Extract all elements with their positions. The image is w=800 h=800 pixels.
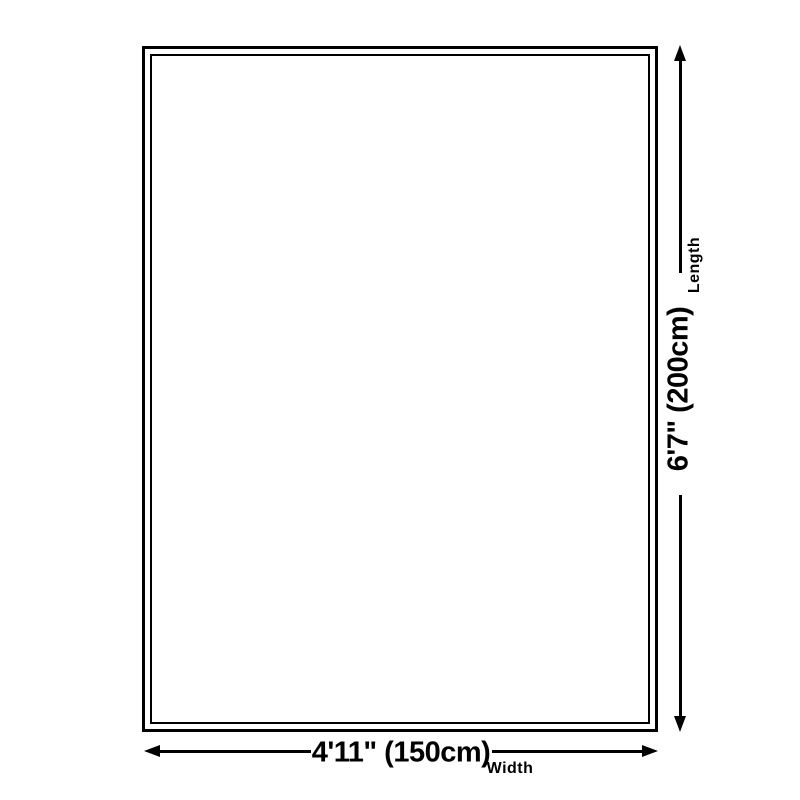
arrow-left-icon — [144, 745, 160, 757]
arrow-up-icon — [674, 45, 686, 61]
arrow-right-icon — [642, 745, 658, 757]
width-dimension-line-right — [492, 750, 643, 753]
product-outline-outer — [142, 46, 658, 732]
size-diagram: Length 6'7" (200cm) 4'11" (150cm) Width — [0, 0, 800, 800]
length-axis-label: Length — [686, 237, 704, 293]
length-dimension-line-top — [679, 60, 682, 273]
arrow-down-icon — [674, 716, 686, 732]
product-outline-inner — [150, 54, 650, 724]
length-dimension-line-bottom — [679, 495, 682, 717]
width-axis-label: Width — [487, 760, 534, 778]
width-value-label: 4'11" (150cm) — [312, 737, 491, 770]
length-value-label: 6'7" (200cm) — [663, 307, 696, 472]
width-dimension-line-left — [159, 750, 311, 753]
